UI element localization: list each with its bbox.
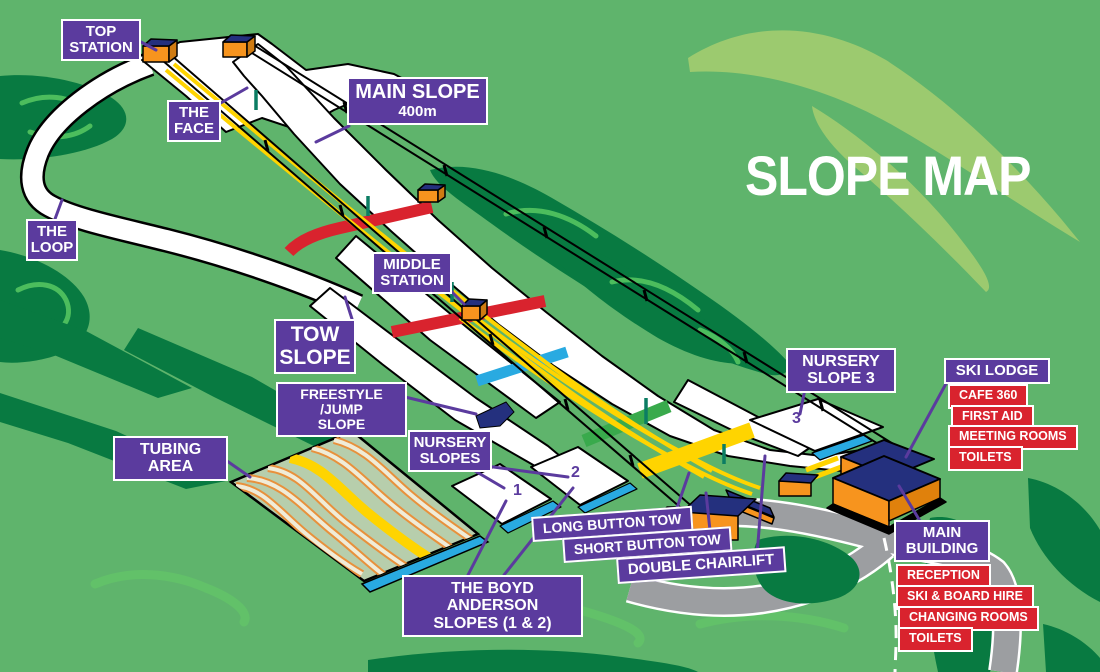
label-main-slope: MAIN SLOPE 400m xyxy=(347,77,488,125)
label-line: FREESTYLE /JUMP xyxy=(280,387,403,417)
label-line: SKI LODGE xyxy=(948,363,1046,379)
label-line: TOP xyxy=(65,24,137,40)
label-freestyle-jump-slope: FREESTYLE /JUMP SLOPE xyxy=(276,382,407,437)
label-line: FACE xyxy=(171,121,217,137)
label-line: SLOPE xyxy=(278,347,352,370)
label-middle-station: MIDDLE STATION xyxy=(372,252,452,294)
label-nursery-slopes: NURSERY SLOPES xyxy=(408,430,492,472)
middle-station-hut xyxy=(462,299,487,320)
slope-number-1: 1 xyxy=(513,482,522,500)
label-line: MIDDLE xyxy=(376,257,448,273)
label-line: THE xyxy=(30,224,74,240)
upper-lift-hut xyxy=(418,184,445,202)
label-line: STATION xyxy=(376,273,448,289)
slope-number-2: 2 xyxy=(571,464,580,482)
label-line: MAIN xyxy=(898,525,986,541)
label-tow-slope: TOW SLOPE xyxy=(274,319,356,374)
top-station-hut xyxy=(143,39,177,62)
label-main-building: MAIN BUILDING xyxy=(894,520,990,562)
label-line: MAIN SLOPE xyxy=(351,82,484,104)
label-line: THE xyxy=(171,105,217,121)
label-line: THE BOYD ANDERSON xyxy=(406,580,579,615)
label-line: SLOPES xyxy=(412,451,488,467)
label-line: BUILDING xyxy=(898,541,986,557)
facility-toilets-lodge: TOILETS xyxy=(948,446,1023,471)
label-line: TUBING AREA xyxy=(117,441,224,476)
label-line: SLOPE xyxy=(280,417,403,432)
label-line: SLOPES (1 & 2) xyxy=(406,615,579,632)
page-title: SLOPE MAP xyxy=(745,148,1057,204)
label-line: 400m xyxy=(351,104,484,120)
label-line: DOUBLE CHAIRLIFT xyxy=(627,551,774,578)
label-line: LOOP xyxy=(30,240,74,256)
label-tubing-area: TUBING AREA xyxy=(113,436,228,481)
slope-map: SLOPE MAP TOP STATION THE FACE MAIN SLOP… xyxy=(0,0,1100,672)
label-nursery-slope-3: NURSERY SLOPE 3 xyxy=(786,348,896,393)
label-line: TOW xyxy=(278,324,352,347)
label-line: NURSERY xyxy=(790,353,892,370)
top-hut-2 xyxy=(223,35,255,57)
facility-toilets-main: TOILETS xyxy=(898,627,973,652)
label-the-face: THE FACE xyxy=(167,100,221,142)
label-line: SLOPE 3 xyxy=(790,370,892,387)
label-ski-lodge: SKI LODGE xyxy=(944,358,1050,384)
label-top-station: TOP STATION xyxy=(61,19,141,61)
label-the-loop: THE LOOP xyxy=(26,219,78,261)
label-line: NURSERY xyxy=(412,435,488,451)
label-line: STATION xyxy=(65,40,137,56)
slope-number-3: 3 xyxy=(792,410,801,428)
label-boyd-anderson-slopes: THE BOYD ANDERSON SLOPES (1 & 2) xyxy=(402,575,583,637)
